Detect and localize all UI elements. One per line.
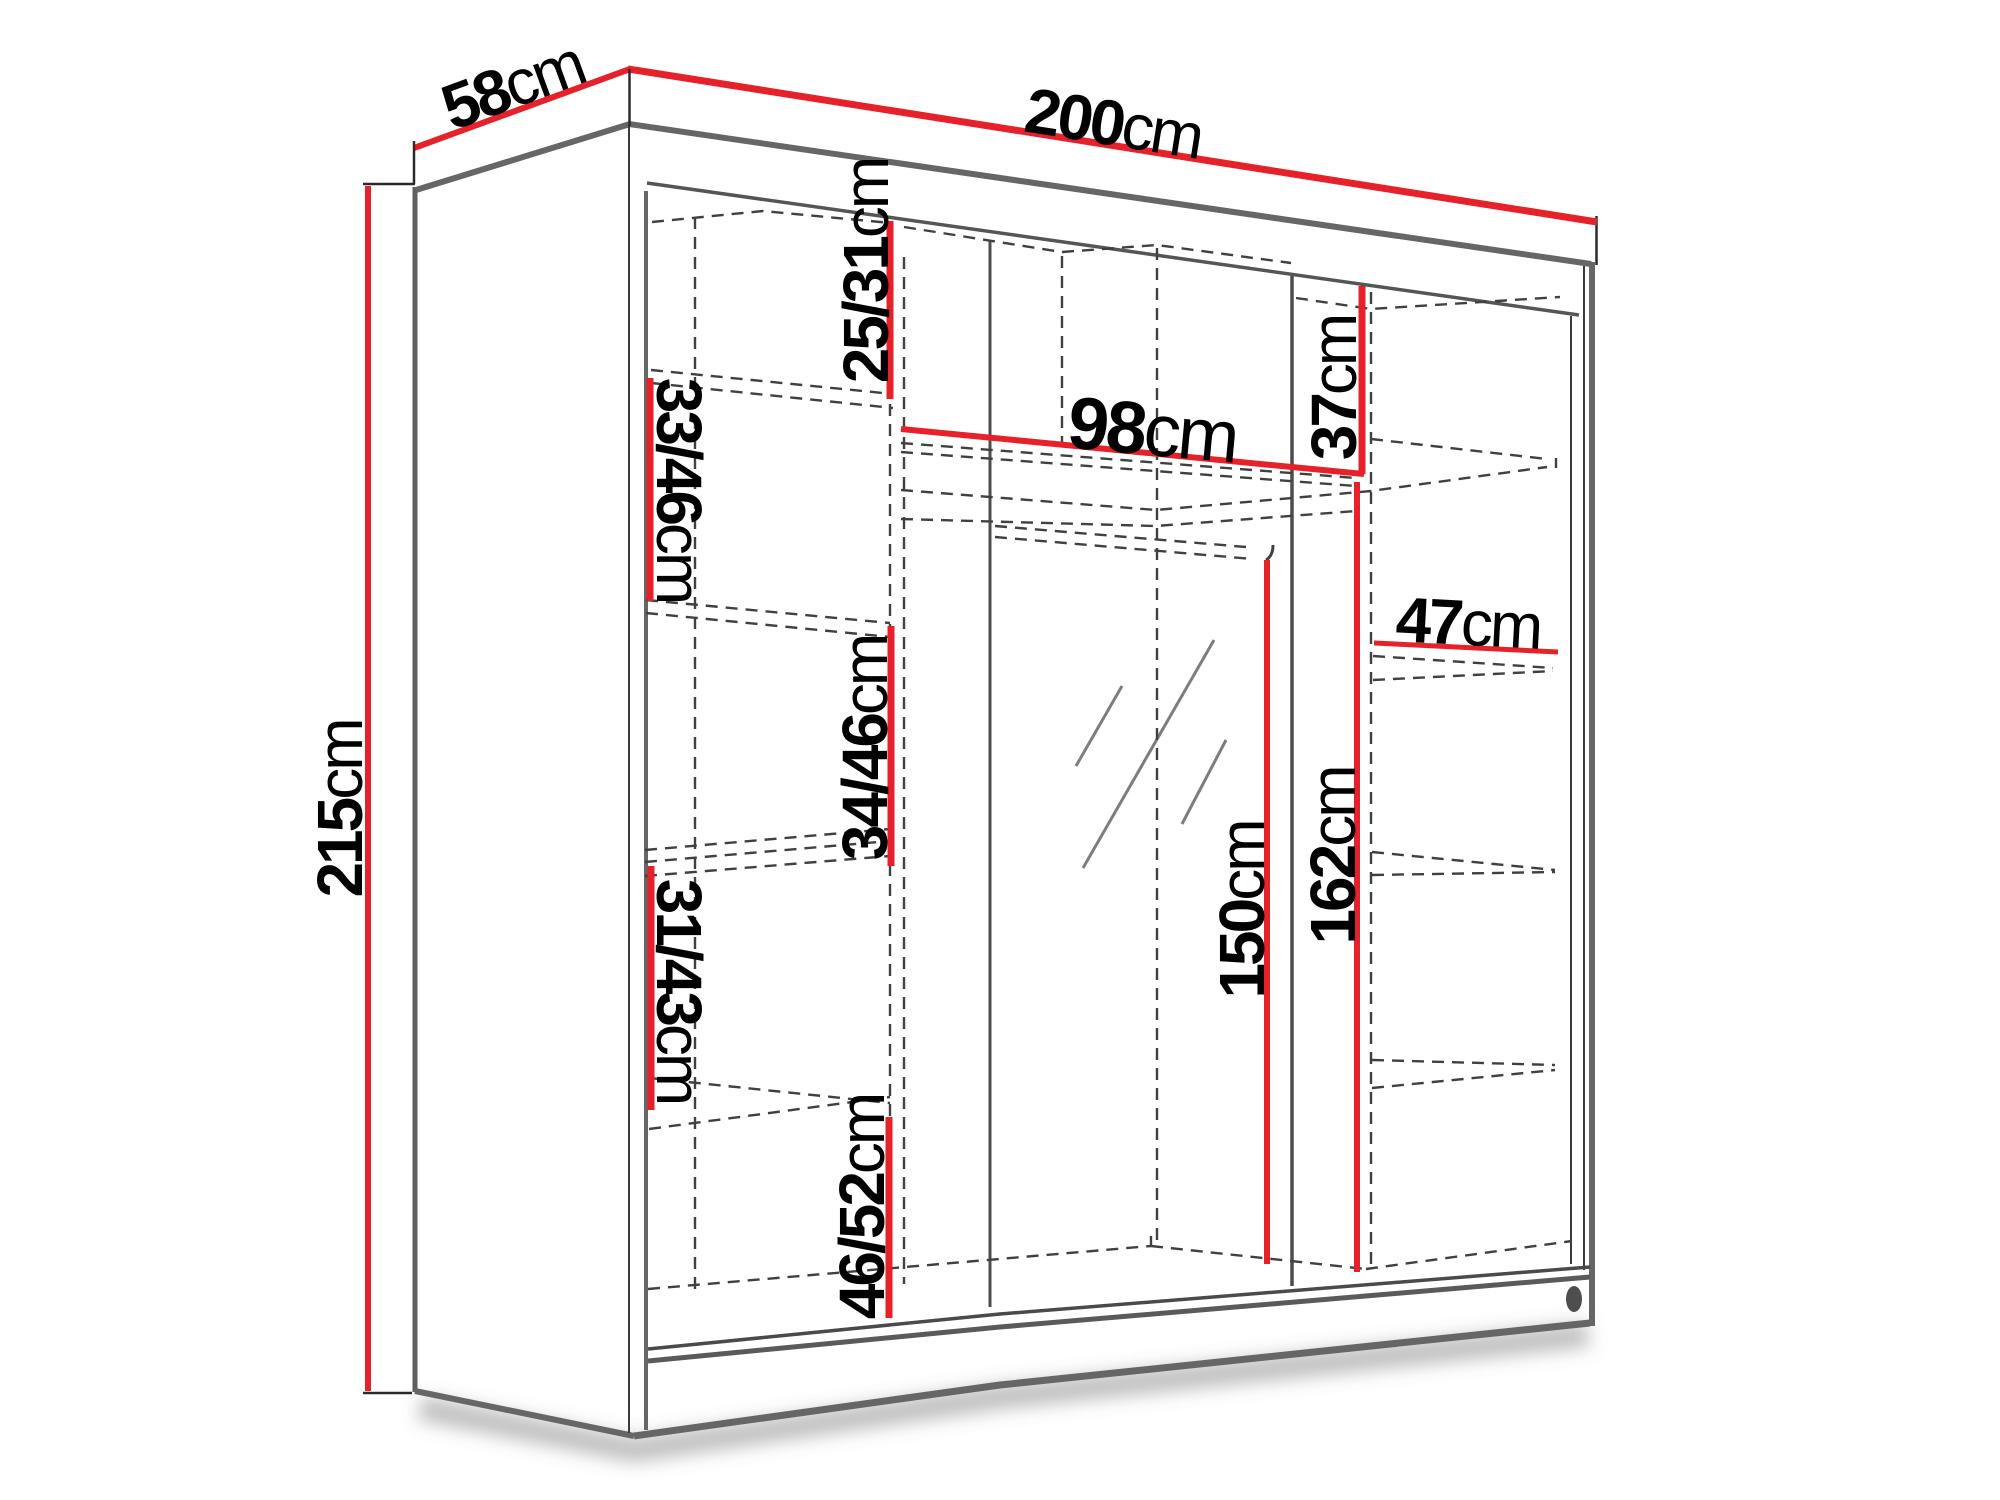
svg-text:200cm: 200cm xyxy=(1020,74,1206,173)
svg-text:25/31cm: 25/31cm xyxy=(830,159,902,383)
svg-text:46/52cm: 46/52cm xyxy=(826,1095,898,1319)
svg-text:31/43cm: 31/43cm xyxy=(643,879,715,1103)
svg-text:34/46cm: 34/46cm xyxy=(829,636,901,860)
svg-text:162cm: 162cm xyxy=(1297,767,1369,944)
svg-text:33/46cm: 33/46cm xyxy=(643,378,715,602)
svg-text:215cm: 215cm xyxy=(304,720,376,897)
svg-text:37cm: 37cm xyxy=(1298,316,1370,461)
svg-text:98cm: 98cm xyxy=(1064,380,1240,478)
svg-text:58cm: 58cm xyxy=(432,27,592,144)
svg-text:150cm: 150cm xyxy=(1206,821,1278,998)
svg-text:47cm: 47cm xyxy=(1394,583,1542,662)
